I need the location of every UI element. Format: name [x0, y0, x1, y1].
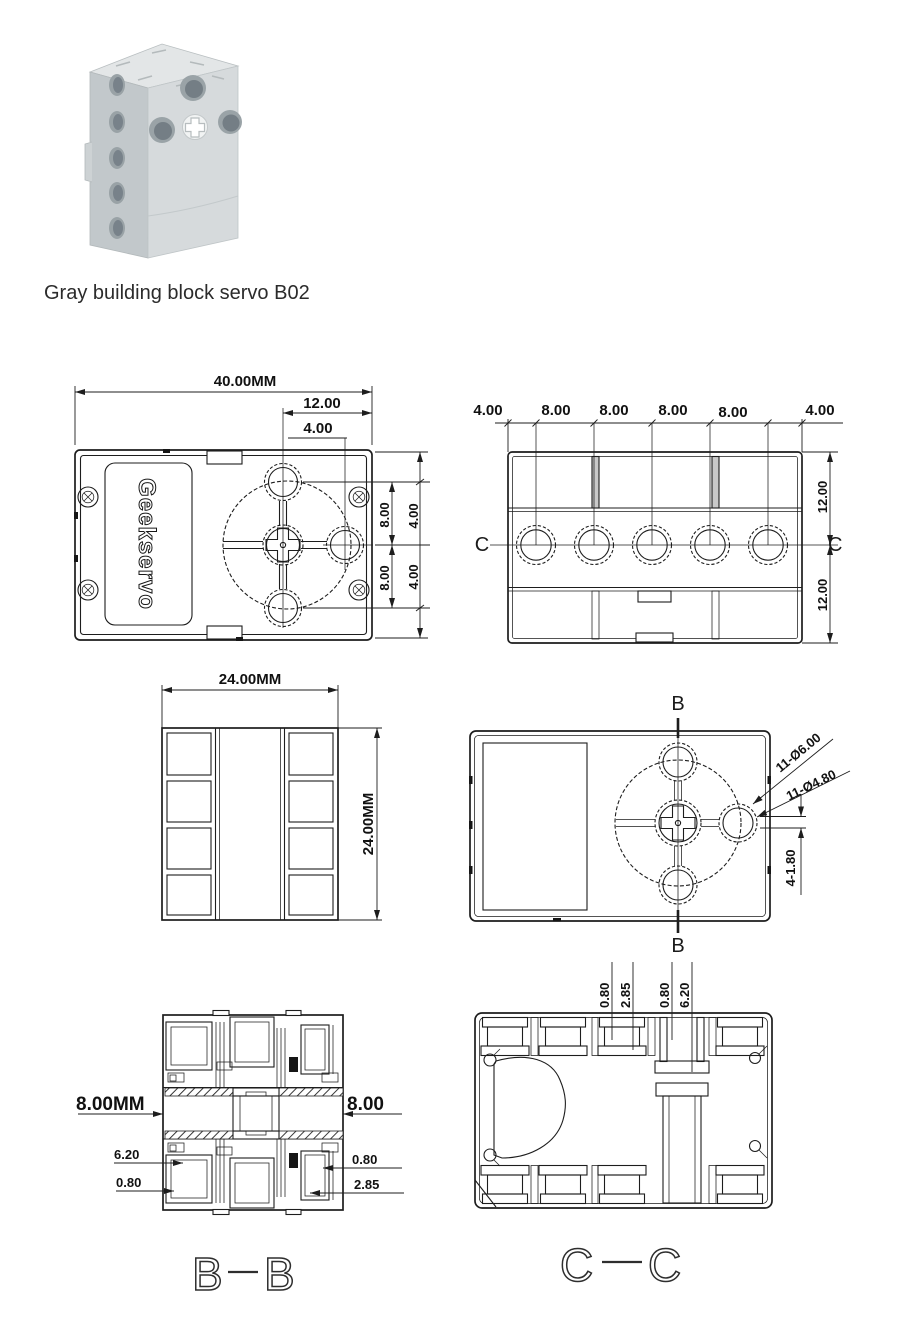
- dim-right-lower: 12.00: [815, 579, 830, 612]
- product-photo: [72, 38, 262, 268]
- dim-cc-3: 6.20: [677, 983, 692, 1008]
- right-cells: [289, 733, 333, 915]
- dim-4-lower: 4.00: [406, 564, 421, 589]
- body: [162, 728, 338, 920]
- dim-4-upper: 4.00: [406, 503, 421, 528]
- dim-top-3: 8.00: [658, 402, 687, 419]
- top-slots: [481, 1018, 764, 1074]
- dim-0-80-left: 0.80: [116, 1175, 141, 1190]
- brand-logo-text: Geekservo: [133, 478, 160, 610]
- dim-top-4: 8.00: [718, 404, 747, 421]
- dim-12: 12.00: [303, 395, 341, 412]
- back-view-drawing: B B 11-Ø6.00 11-Ø4.80 4-1.80: [440, 690, 865, 965]
- body: [508, 452, 802, 643]
- dim-channel-left: 8.00MM: [76, 1094, 145, 1115]
- dim-8-upper: 8.00: [377, 502, 392, 527]
- title-b-right: B: [264, 1248, 295, 1300]
- dim-right-upper: 12.00: [815, 481, 830, 514]
- dimensions: 40.00MM 12.00 4.00 8.00 8.00 4.00 4.00: [75, 373, 430, 638]
- center-channel: [163, 1088, 343, 1140]
- servo-hub: [615, 743, 757, 904]
- body: [475, 1013, 772, 1208]
- brand-label: Geekservo: [105, 463, 192, 625]
- dim-channel-right: 8.00: [347, 1094, 384, 1115]
- section-bb-drawing: 8.00MM 8.00 6.20 0.80 0.80 2.85: [70, 1000, 405, 1245]
- dim-cc-2: 0.80: [657, 983, 672, 1008]
- dim-height: 24.00MM: [360, 793, 377, 856]
- deep-slot: [655, 1018, 709, 1074]
- dim-2-85: 2.85: [354, 1177, 379, 1192]
- title-b-left: B: [192, 1248, 223, 1300]
- section-letter-b-top: B: [671, 693, 684, 715]
- dim-top-5: 4.00: [805, 402, 834, 419]
- section-bb-title: B B: [182, 1243, 312, 1298]
- pin-hole: [218, 110, 242, 134]
- dim-4: 4.00: [303, 420, 332, 437]
- section-line-bb: B B: [671, 693, 684, 957]
- hole-callouts: 11-Ø6.00 11-Ø4.80: [753, 730, 850, 817]
- lower-half: [166, 1139, 338, 1208]
- dimensions: 24.00MM 24.00MM: [162, 671, 382, 920]
- dim-0-80-right: 0.80: [352, 1152, 377, 1167]
- dim-top-0: 4.00: [473, 402, 502, 419]
- product-caption: Gray building block servo B02: [44, 282, 310, 305]
- section-line-cc: C C: [475, 534, 843, 556]
- dim-cc-0: 0.80: [597, 983, 612, 1008]
- dim-width: 24.00MM: [219, 671, 282, 688]
- title-c-right: C: [648, 1239, 681, 1291]
- page: Gray building block servo B02 Geekservo: [0, 0, 900, 1343]
- pin-hole: [180, 75, 206, 101]
- top-view-drawing: C C 4.00 8.00 8.00 8.00 8.00 4.00: [450, 393, 875, 668]
- bottom-slots: [481, 1083, 764, 1204]
- dim-8-lower: 8.00: [377, 565, 392, 590]
- left-edge-notch: [84, 142, 92, 182]
- pin-hole: [149, 117, 175, 143]
- front-view-drawing: Geekservo: [60, 365, 445, 665]
- section-letter-c-left: C: [475, 534, 489, 556]
- end-view-drawing: 24.00MM 24.00MM: [130, 670, 420, 940]
- left-cells: [167, 733, 211, 915]
- motor-cavity: [484, 1049, 565, 1166]
- dim-top-2: 8.00: [599, 402, 628, 419]
- axle-cross-hole: [183, 115, 208, 140]
- dim-6-20: 6.20: [114, 1147, 139, 1162]
- tall-block: [656, 1083, 708, 1203]
- corner-holes: [750, 1046, 768, 1158]
- upper-half: [166, 1017, 338, 1087]
- dim-cc-1: 2.85: [618, 983, 633, 1008]
- dim-top-1: 8.00: [541, 402, 570, 419]
- dim-slots: 4-1.80: [783, 850, 798, 887]
- slot-dimension: 4-1.80: [760, 794, 806, 895]
- title-c-left: C: [560, 1239, 593, 1291]
- dimensions: 4.00 8.00 8.00 8.00 8.00 4.00 12.00 12.0…: [473, 402, 843, 643]
- dim-width: 40.00MM: [214, 373, 277, 390]
- section-cc-drawing: 0.80 2.85 0.80 6.20: [450, 948, 805, 1235]
- section-cc-title: C C: [552, 1234, 692, 1289]
